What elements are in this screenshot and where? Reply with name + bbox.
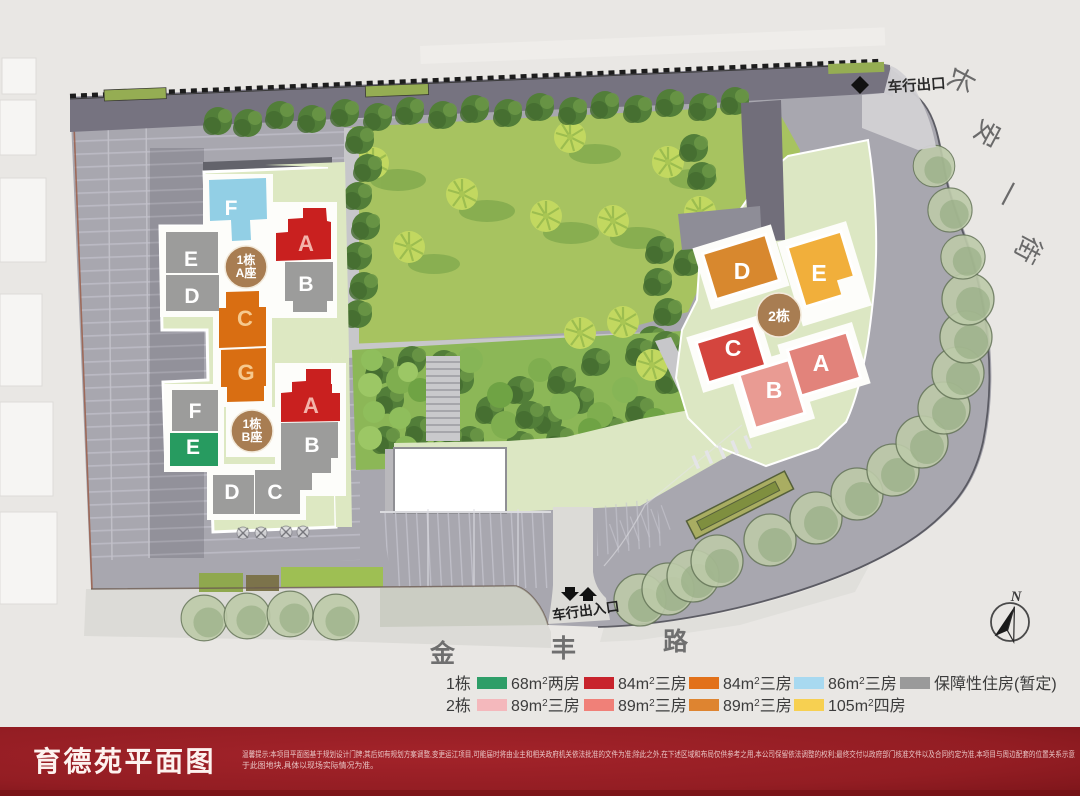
svg-text:丰: 丰	[551, 635, 576, 663]
svg-text:G: G	[237, 360, 254, 385]
svg-text:N: N	[1010, 589, 1023, 605]
svg-text:D: D	[224, 481, 239, 504]
svg-text:B: B	[298, 273, 313, 296]
svg-text:A: A	[303, 393, 319, 418]
svg-text:E: E	[184, 248, 198, 271]
svg-text:C: C	[237, 306, 253, 331]
svg-text:B: B	[304, 434, 319, 457]
svg-text:金: 金	[429, 639, 456, 668]
svg-text:1栋: 1栋	[243, 416, 262, 431]
svg-text:2栋: 2栋	[768, 308, 790, 324]
svg-text:105m2四房: 105m2四房	[828, 697, 906, 715]
svg-text:育德苑平面图: 育德苑平面图	[33, 745, 216, 777]
svg-text:B座: B座	[242, 429, 263, 444]
svg-text:A: A	[298, 231, 314, 256]
svg-text:D: D	[734, 258, 751, 284]
svg-text:C: C	[725, 335, 742, 361]
svg-text:B: B	[766, 377, 783, 403]
svg-text:A座: A座	[236, 265, 257, 280]
svg-text:1栋: 1栋	[446, 675, 471, 693]
svg-text:C: C	[267, 481, 282, 504]
svg-text:温馨提示:本项目平面图基于规划设计门牌;其后如有规划方案调整: 温馨提示:本项目平面图基于规划设计门牌;其后如有规划方案调整,变更运江项目,可能…	[242, 749, 1075, 759]
svg-text:保障性住房(暂定): 保障性住房(暂定)	[934, 675, 1057, 693]
svg-text:D: D	[184, 285, 199, 308]
svg-text:E: E	[186, 436, 200, 459]
svg-text:F: F	[189, 400, 202, 423]
svg-text:F: F	[225, 197, 238, 220]
svg-text:A: A	[813, 350, 830, 376]
svg-text:E: E	[811, 260, 826, 286]
svg-text:于此图地块,具体以现场实际情况为准。: 于此图地块,具体以现场实际情况为准。	[242, 760, 378, 770]
svg-text:路: 路	[663, 628, 689, 656]
svg-text:2栋: 2栋	[446, 697, 471, 715]
svg-text:1栋: 1栋	[237, 252, 256, 267]
